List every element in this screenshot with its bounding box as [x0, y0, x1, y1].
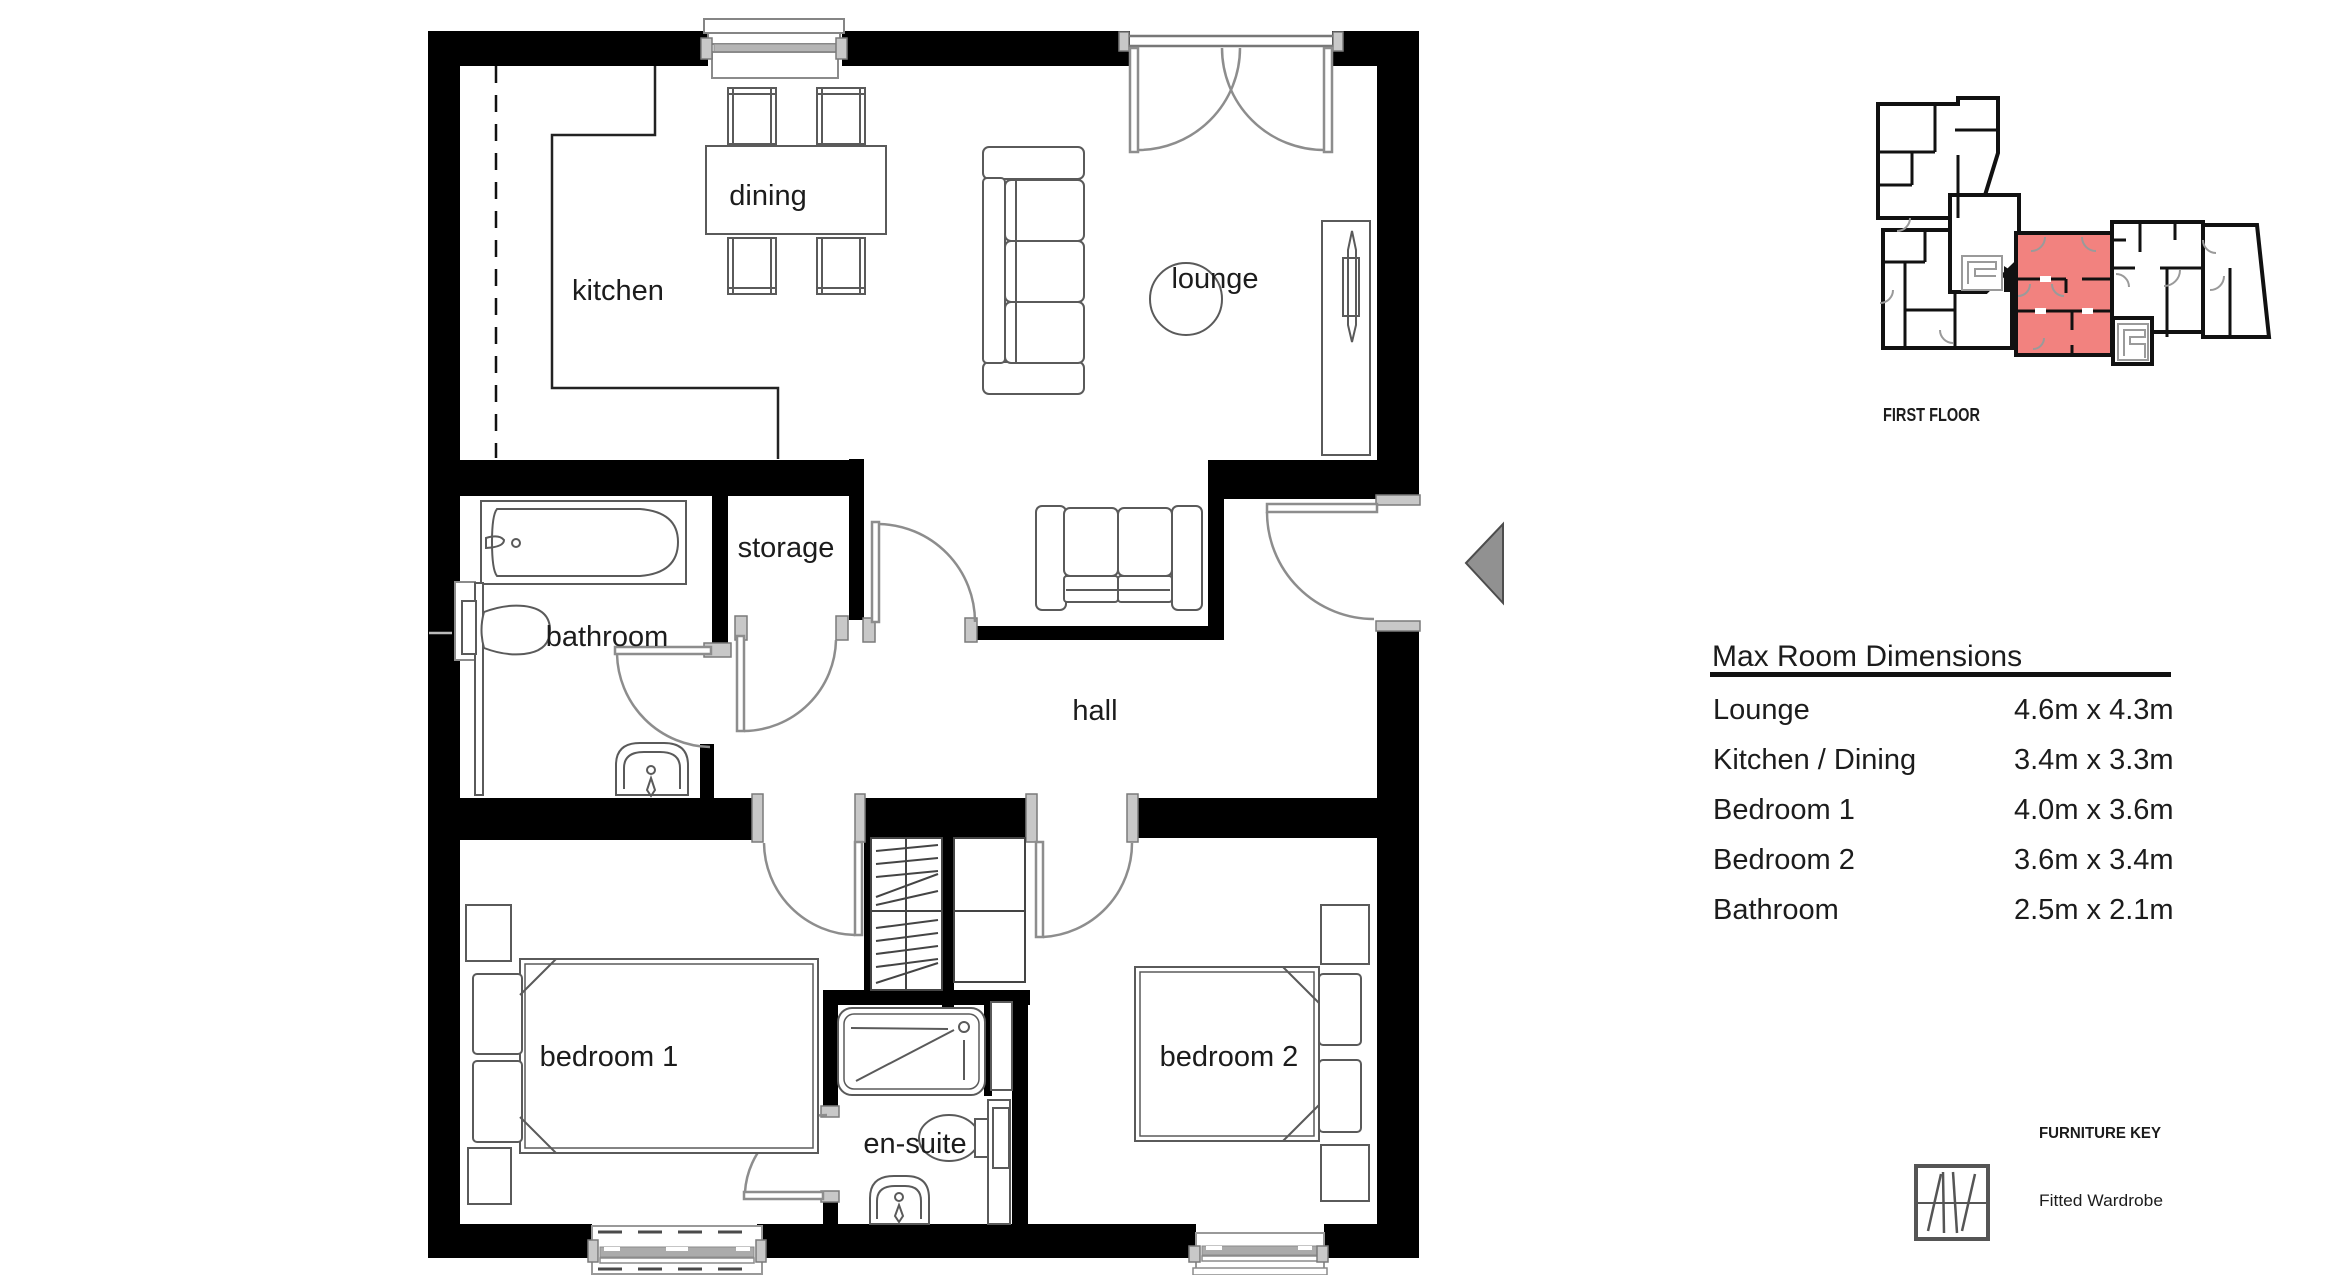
svg-text:4.6m x 4.3m: 4.6m x 4.3m	[2014, 694, 2174, 726]
svg-text:bedroom 2: bedroom 2	[1160, 1041, 1299, 1073]
svg-text:Bathroom: Bathroom	[1713, 894, 1839, 926]
svg-text:Fitted Wardrobe: Fitted Wardrobe	[2039, 1191, 2163, 1210]
svg-text:en-suite: en-suite	[863, 1128, 966, 1160]
svg-text:FURNITURE KEY: FURNITURE KEY	[2039, 1125, 2161, 1142]
svg-text:Max Room Dimensions: Max Room Dimensions	[1712, 640, 2022, 673]
svg-text:3.4m x 3.3m: 3.4m x 3.3m	[2014, 744, 2174, 776]
svg-text:Bedroom 2: Bedroom 2	[1713, 844, 1855, 876]
svg-text:storage: storage	[738, 532, 835, 564]
svg-text:2.5m x 2.1m: 2.5m x 2.1m	[2014, 894, 2174, 926]
svg-text:FIRST FLOOR: FIRST FLOOR	[1883, 405, 1980, 425]
svg-text:4.0m x 3.6m: 4.0m x 3.6m	[2014, 794, 2174, 826]
svg-text:bathroom: bathroom	[546, 621, 669, 653]
svg-text:Bedroom 1: Bedroom 1	[1713, 794, 1855, 826]
svg-text:Kitchen / Dining: Kitchen / Dining	[1713, 744, 1916, 776]
svg-text:dining: dining	[729, 180, 806, 212]
svg-text:lounge: lounge	[1171, 263, 1258, 295]
svg-text:bedroom 1: bedroom 1	[540, 1041, 679, 1073]
svg-text:Lounge: Lounge	[1713, 694, 1810, 726]
svg-text:3.6m x 3.4m: 3.6m x 3.4m	[2014, 844, 2174, 876]
svg-text:hall: hall	[1072, 695, 1117, 727]
svg-text:kitchen: kitchen	[572, 275, 664, 307]
